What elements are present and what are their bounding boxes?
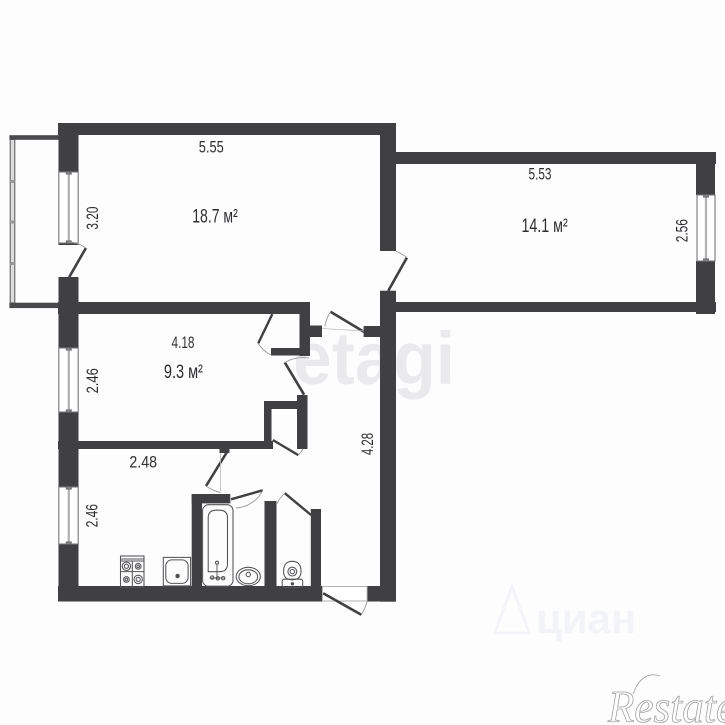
svg-text:3.20: 3.20 (83, 207, 102, 230)
svg-text:5.53: 5.53 (529, 165, 552, 184)
svg-text:4.18: 4.18 (172, 333, 195, 352)
svg-text:Restate: Restate (607, 681, 725, 725)
svg-text:4.28: 4.28 (358, 433, 377, 455)
svg-text:5.55: 5.55 (199, 137, 224, 156)
svg-text:2.48: 2.48 (129, 453, 157, 472)
svg-text:18.7 м²: 18.7 м² (192, 206, 238, 228)
svg-text:9.3 м²: 9.3 м² (164, 361, 203, 383)
svg-text:2.46: 2.46 (83, 504, 102, 527)
svg-text:2.56: 2.56 (673, 219, 692, 242)
svg-text:14.1 м²: 14.1 м² (521, 215, 568, 237)
svg-text:2.46: 2.46 (83, 368, 102, 393)
svg-text:циан: циан (536, 595, 636, 642)
